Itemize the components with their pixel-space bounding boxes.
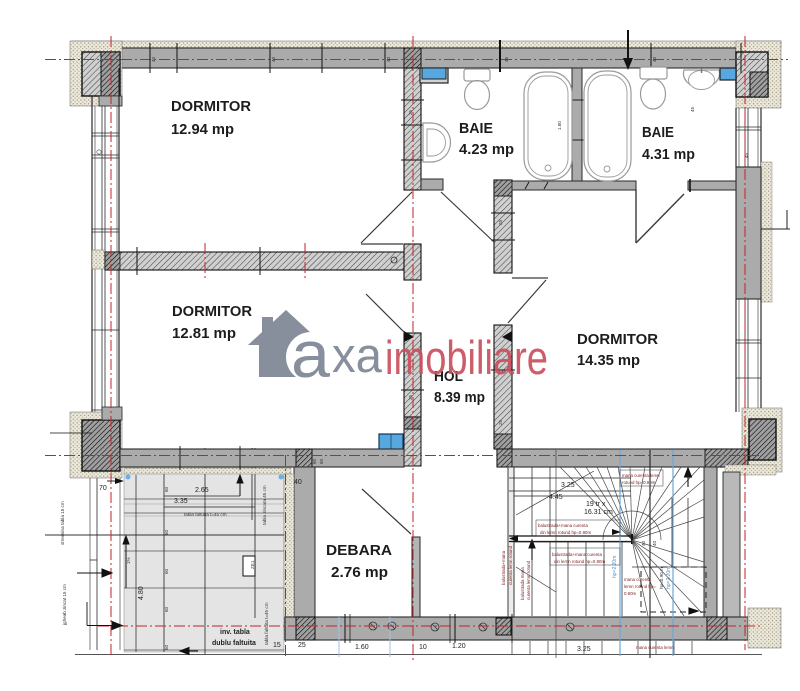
svg-text:0.90m: 0.90m — [624, 591, 637, 596]
svg-text:25: 25 — [408, 394, 413, 400]
svg-text:12.94 mp: 12.94 mp — [171, 122, 234, 138]
svg-text:60: 60 — [312, 458, 317, 464]
svg-text:BAIE: BAIE — [642, 125, 674, 141]
svg-text:streasina tabla 15 cm: streasina tabla 15 cm — [60, 501, 65, 545]
svg-text:tabla faltuita t=45 cm: tabla faltuita t=45 cm — [184, 512, 227, 517]
svg-text:10: 10 — [419, 644, 427, 651]
svg-text:25: 25 — [498, 419, 503, 425]
svg-text:tabla zincata 45 cm: tabla zincata 45 cm — [262, 485, 267, 525]
svg-text:hp=0.90 m: hp=0.90 m — [659, 567, 664, 589]
svg-text:3.25: 3.25 — [577, 646, 591, 653]
svg-text:19 tr x: 19 tr x — [586, 501, 606, 508]
svg-text:14.35 mp: 14.35 mp — [577, 353, 640, 369]
svg-text:DORMITOR: DORMITOR — [172, 304, 253, 320]
svg-text:70: 70 — [99, 485, 107, 492]
svg-text:mana curenta lemn: mana curenta lemn — [622, 473, 660, 478]
svg-text:balustrada+mana curenta: balustrada+mana curenta — [552, 552, 602, 557]
svg-text:DORMITOR: DORMITOR — [577, 332, 659, 348]
svg-text:4.45: 4.45 — [549, 494, 563, 501]
svg-text:BAIE: BAIE — [459, 121, 493, 137]
svg-text:15: 15 — [273, 642, 281, 649]
svg-text:16.31 cm: 16.31 cm — [584, 509, 613, 516]
svg-text:60: 60 — [164, 486, 169, 492]
svg-text:25: 25 — [298, 642, 306, 649]
svg-text:xa: xa — [332, 329, 383, 383]
svg-text:imobiliare: imobiliare — [385, 331, 548, 384]
svg-text:60: 60 — [164, 644, 169, 650]
svg-text:2.76 mp: 2.76 mp — [331, 565, 388, 581]
svg-text:8.39 mp: 8.39 mp — [434, 390, 485, 406]
svg-text:jgheab zincat 15 cm: jgheab zincat 15 cm — [62, 584, 67, 626]
svg-text:40: 40 — [271, 56, 276, 62]
svg-text:45: 45 — [504, 56, 509, 62]
svg-text:60: 60 — [164, 568, 169, 574]
svg-text:hp=2.20m: hp=2.20m — [612, 556, 618, 578]
svg-text:din lemn rotund hp=0.90m: din lemn rotund hp=0.90m — [554, 559, 605, 564]
svg-text:4.23 mp: 4.23 mp — [459, 142, 514, 158]
svg-text:mana curenta lemn: mana curenta lemn — [636, 645, 674, 650]
svg-text:12.81 mp: 12.81 mp — [172, 326, 236, 342]
svg-text:2.65: 2.65 — [195, 487, 209, 494]
svg-text:hp=2.20m: hp=2.20m — [666, 567, 672, 589]
svg-text:1%: 1% — [126, 557, 131, 564]
svg-text:40: 40 — [652, 540, 657, 546]
svg-text:dublu faltuita: dublu faltuita — [212, 640, 256, 647]
svg-text:25: 25 — [498, 219, 503, 225]
svg-text:curenta lemn rotund: curenta lemn rotund — [508, 545, 513, 585]
svg-text:60: 60 — [319, 458, 324, 464]
svg-text:balustrada mana: balustrada mana — [520, 567, 525, 600]
svg-text:4.31 mp: 4.31 mp — [642, 147, 695, 163]
svg-text:1.20: 1.20 — [452, 643, 466, 650]
svg-text:DEBARA: DEBARA — [326, 543, 393, 559]
svg-text:3.35: 3.35 — [174, 498, 188, 505]
svg-text:curenta lemn rotund: curenta lemn rotund — [526, 560, 531, 600]
svg-text:60: 60 — [164, 606, 169, 612]
svg-text:40: 40 — [386, 56, 391, 62]
svg-text:40: 40 — [294, 479, 302, 486]
svg-text:4.80: 4.80 — [138, 586, 145, 600]
svg-text:mana curenta: mana curenta — [624, 577, 651, 582]
svg-text:inv. tabla: inv. tabla — [220, 629, 250, 636]
svg-text:balustrada+mana curenta: balustrada+mana curenta — [538, 523, 588, 528]
svg-text:40: 40 — [641, 540, 646, 546]
svg-text:45: 45 — [690, 106, 695, 112]
svg-text:1.60: 1.60 — [355, 644, 369, 651]
svg-text:DORMITOR: DORMITOR — [171, 99, 252, 115]
svg-text:60: 60 — [164, 529, 169, 535]
svg-text:40: 40 — [151, 56, 156, 62]
svg-text:40: 40 — [652, 56, 657, 62]
svg-text:lemn rotund hp=: lemn rotund hp= — [624, 584, 656, 589]
svg-text:25: 25 — [408, 109, 413, 115]
svg-text:balustrada+mana: balustrada+mana — [501, 550, 506, 585]
svg-text:rotund hp=0.90m: rotund hp=0.90m — [622, 480, 656, 485]
svg-text:din lemn rotund hp=0.90m: din lemn rotund hp=0.90m — [540, 530, 591, 535]
svg-text:tabla faltuita t=45 cm: tabla faltuita t=45 cm — [264, 602, 269, 645]
svg-text:3.25: 3.25 — [561, 482, 575, 489]
svg-text:1.80: 1.80 — [557, 121, 562, 130]
svg-text:45: 45 — [744, 152, 749, 158]
svg-text:ZE1: ZE1 — [250, 560, 255, 569]
svg-text:a: a — [291, 317, 330, 391]
